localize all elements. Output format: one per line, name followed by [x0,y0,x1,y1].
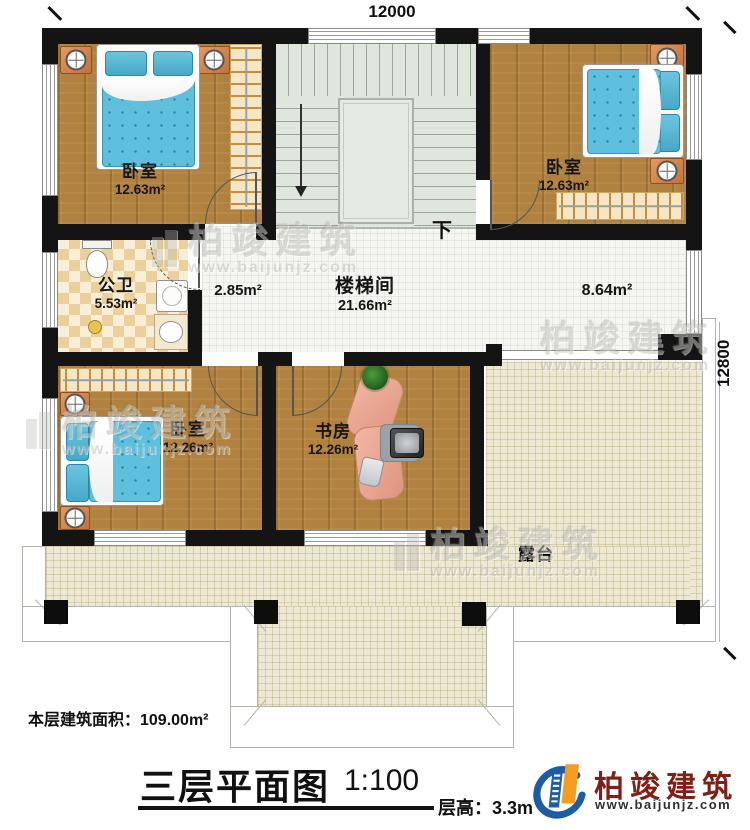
area-label-corridor: 8.64m² [570,282,644,300]
window [94,530,186,546]
door-leaf [490,180,492,230]
nightstand [650,158,684,184]
toilet-icon [82,240,112,249]
window [686,74,702,160]
stair-treads-left [276,96,338,228]
pillow-icon [153,51,193,76]
room-label-bedroom-tr: 卧室 12.63m² [514,158,614,193]
down-arrow-icon [295,186,307,203]
room-label-terrace: 露台 [504,540,568,565]
window [42,252,58,328]
dimension-tick [48,6,62,20]
nightstand [198,46,230,74]
terrace-pillar [462,602,486,626]
window [686,250,702,334]
plan-title: 三层平面图 [140,758,330,810]
toilet-bowl-icon [86,250,108,278]
plan-scale: 1:100 [344,764,419,798]
room-label-bathroom: 公卫 5.53m² [76,276,156,311]
computer-monitor-icon [390,428,424,458]
stair-treads-right [414,96,476,228]
door-leaf [256,366,258,416]
door-leaf [255,172,257,224]
terrace-sill [502,350,658,360]
wall-bedroom-tl-south-a [42,224,205,240]
dimension-tick [686,6,700,20]
lamp-icon [657,161,678,182]
wardrobe-bottom-left [60,368,192,392]
pillow-icon [105,51,147,76]
window [42,64,58,196]
bed-top-right [582,64,684,158]
dimension-tick [723,21,736,34]
wall-bedroom-tl-east [262,28,276,224]
room-label-study: 书房 12.26m² [286,422,380,457]
terrace-pillar [254,600,278,624]
wall-hall-south-b [344,352,488,366]
stair-down-label: 下 [432,214,452,243]
door-leaf [292,366,294,416]
wall-bedroom-tr-south [476,224,702,240]
stair-direction-line [300,104,302,188]
sink-basin-icon [159,321,183,343]
wall-bedroom-tr-west [476,28,490,180]
logo-url-text: www.baijunjz.com [595,797,731,812]
room-area: 21.66m² [338,298,392,315]
title-underline [138,806,434,810]
sheet-fold [639,69,661,154]
floor-terrace-protrusion [258,606,486,706]
room-name: 卧室 [122,162,158,182]
sheet-fold [89,421,113,502]
logo-icon [530,758,588,822]
room-label-stairwell: 楼梯间 21.66m² [322,276,408,315]
floor-area-text: 本层建筑面积：109.00m² [28,706,209,730]
area-label-hall-small: 2.85m² [206,282,270,299]
lamp-icon [65,508,86,529]
door-leaf [198,240,200,288]
nightstand [60,46,92,74]
stair-void [338,98,414,224]
window [304,530,426,546]
room-name: 卧室 [170,420,206,440]
terrace-pillar [676,600,700,624]
floor-plan-canvas: 卧室 12.63m² 卧室 12.63m² 公卫 5.53m² 2.85m² 楼… [0,0,750,830]
dimension-right: 12800 [714,316,738,410]
window [308,28,436,44]
wall-study-east [470,366,484,530]
lamp-icon [204,50,225,71]
room-area: 12.63m² [539,178,589,194]
stair-treads-top [276,44,476,96]
room-name: 公卫 [98,276,134,296]
floor-terrace-bottom [46,546,690,606]
wardrobe-top-right [556,192,684,220]
room-area: 5.53m² [95,296,138,312]
dimension-tick [723,647,736,660]
room-name: 卧室 [546,158,582,178]
plant-icon [362,364,388,390]
terrace-pillar [44,600,68,624]
room-area: 12.63m² [115,182,165,198]
lamp-icon [65,394,86,415]
room-area: 12.26m² [163,440,213,456]
nightstand [60,392,90,416]
lamp-icon [66,50,87,71]
sink-counter [154,314,188,350]
room-area: 12.26m² [308,442,358,458]
pillow-icon [66,464,89,502]
nightstand [60,506,90,530]
room-name: 书房 [315,422,351,442]
window [478,28,530,44]
room-label-bedroom-tl: 卧室 12.63m² [90,162,190,197]
pillow-icon [66,423,89,461]
floor-height-text: 层高：3.3m [438,794,533,820]
room-name: 楼梯间 [335,276,395,298]
wall-bedroom-bl-east [262,366,276,530]
floor-drain-icon [88,320,102,334]
dimension-top: 12000 [350,2,434,22]
wall-bedroom-tl-south-b [256,224,276,240]
wall-hall-south-a [258,352,292,366]
bed-top-left [96,44,200,170]
wall-bathroom-south [42,352,202,366]
wall-stub-corridor-east [658,334,702,360]
room-label-bedroom-bl: 卧室 12.26m² [138,420,238,455]
window [42,398,58,512]
roof-edge-protrusion-bottom [230,706,514,748]
wall-stub-corridor-west [486,344,502,366]
